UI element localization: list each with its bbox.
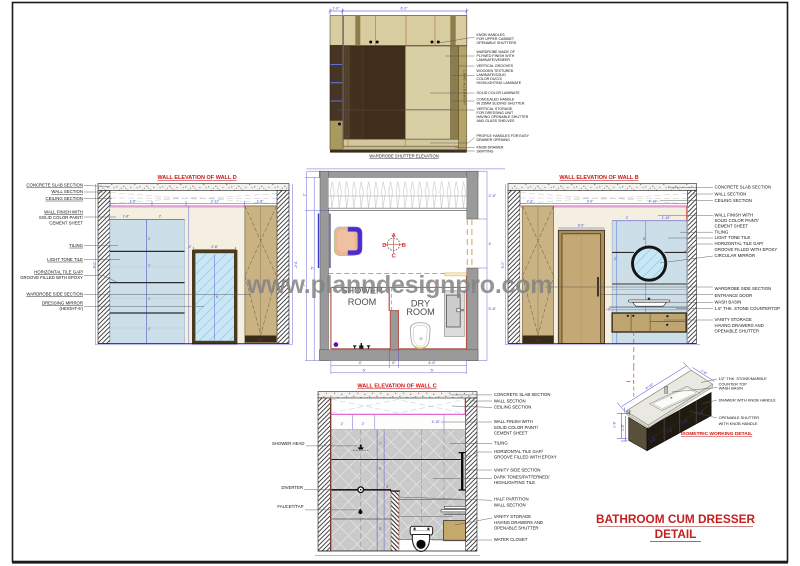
svg-text:5'-6": 5'-6" [489, 307, 497, 311]
svg-text:5': 5' [431, 369, 434, 373]
svg-text:SOLID COLOR LAMINATE: SOLID COLOR LAMINATE [477, 91, 521, 95]
svg-text:4'-6": 4'-6" [428, 361, 436, 365]
svg-text:CEILING SECTION: CEILING SECTION [46, 196, 84, 201]
svg-text:www.planndesignpro.com: www.planndesignpro.com [246, 271, 553, 299]
svg-text:2'-2": 2'-2" [527, 200, 535, 204]
svg-text:FAUCET/TAP: FAUCET/TAP [277, 504, 303, 509]
svg-text:2': 2' [148, 237, 151, 241]
svg-text:SKIRTING: SKIRTING [477, 150, 494, 154]
svg-text:SOLID COLOR PAINT/: SOLID COLOR PAINT/ [39, 215, 84, 220]
svg-text:3': 3' [379, 527, 382, 531]
svg-text:DETAIL: DETAIL [655, 527, 697, 541]
svg-text:OPENABLE SHUTTER: OPENABLE SHUTTER [715, 328, 760, 333]
svg-text:WALL FINISH WITH: WALL FINISH WITH [44, 210, 83, 215]
svg-text:WALL FINISH WITH: WALL FINISH WITH [494, 419, 533, 424]
svg-text:SOLID COLOR PAINT/: SOLID COLOR PAINT/ [494, 425, 539, 430]
svg-text:WASH BASIN: WASH BASIN [719, 385, 743, 390]
svg-text:DRAWER WITH KNOB HANDLE: DRAWER WITH KNOB HANDLE [719, 397, 777, 402]
svg-text:2': 2' [537, 339, 540, 343]
svg-text:WALL ELEVATION OF WALL D: WALL ELEVATION OF WALL D [157, 175, 236, 181]
svg-text:4'-10": 4'-10" [649, 200, 658, 204]
svg-text:WARDROBE SIDE SECTION: WARDROBE SIDE SECTION [715, 286, 772, 291]
svg-text:ENTRANCE DOOR: ENTRANCE DOOR [715, 293, 753, 298]
svg-text:1'-8": 1'-8" [257, 200, 265, 204]
svg-text:VANITY STORAGE: VANITY STORAGE [715, 317, 752, 322]
svg-text:WALL ELEVATION OF WALL B: WALL ELEVATION OF WALL B [559, 175, 638, 181]
svg-text:9'-0": 9'-0" [93, 261, 97, 269]
svg-text:TILING: TILING [69, 243, 84, 248]
svg-text:WALL SECTION: WALL SECTION [494, 502, 526, 507]
svg-text:ROOM: ROOM [406, 307, 435, 317]
svg-text:2': 2' [614, 257, 617, 261]
svg-text:WALL SECTION: WALL SECTION [51, 189, 83, 194]
svg-text:5': 5' [643, 237, 646, 241]
svg-text:CEMENT SHEET: CEMENT SHEET [494, 431, 528, 436]
svg-text:7': 7' [379, 442, 382, 446]
svg-text:WALL SECTION: WALL SECTION [715, 191, 747, 196]
svg-text:1'-10": 1'-10" [662, 216, 671, 220]
svg-text:D: D [382, 243, 386, 249]
svg-text:1'-6": 1'-6" [123, 215, 131, 219]
svg-text:5': 5' [379, 467, 382, 471]
svg-text:3': 3' [386, 485, 389, 489]
svg-text:CEMENT SHEET: CEMENT SHEET [49, 221, 83, 226]
svg-text:DRESSING MIRROR: DRESSING MIRROR [42, 301, 83, 306]
svg-text:1'-5": 1'-5" [130, 200, 138, 204]
svg-text:SHOWER HEAD: SHOWER HEAD [272, 441, 304, 446]
svg-text:DIVERTER: DIVERTER [281, 485, 303, 490]
svg-text:2'-6": 2'-6" [489, 194, 497, 198]
svg-text:1/2" THK. STONE/MARBLE: 1/2" THK. STONE/MARBLE [719, 376, 768, 381]
svg-text:WALL SECTION: WALL SECTION [494, 398, 526, 403]
svg-text:4': 4' [359, 361, 362, 365]
svg-text:1'-0": 1'-0" [333, 7, 341, 11]
svg-text:GROOVE FILLED WITH EPOXY: GROOVE FILLED WITH EPOXY [715, 247, 778, 252]
svg-text:HORIZONTAL TILE GAP/: HORIZONTAL TILE GAP/ [494, 449, 544, 454]
svg-text:WALL FINISH WITH: WALL FINISH WITH [715, 212, 754, 217]
svg-text:1.5" THK. STONE COUNTERTOP: 1.5" THK. STONE COUNTERTOP [715, 306, 781, 311]
svg-text:SOLID COLOR PAINT/: SOLID COLOR PAINT/ [715, 218, 760, 223]
svg-text:6'-2": 6'-2" [401, 7, 409, 11]
svg-text:2': 2' [148, 264, 151, 268]
svg-text:VANITY SIDE SECTION: VANITY SIDE SECTION [494, 467, 541, 472]
svg-text:OPENABLE SHUTTER: OPENABLE SHUTTER [719, 415, 760, 420]
svg-text:2'-11": 2'-11" [211, 200, 220, 204]
svg-text:(HEIGHT-6'): (HEIGHT-6') [60, 306, 84, 311]
svg-text:9'-0": 9'-0" [294, 262, 298, 270]
svg-text:TILING: TILING [715, 229, 730, 234]
svg-text:DARK TONES/PATTERNED/: DARK TONES/PATTERNED/ [494, 475, 550, 480]
svg-text:1½": 1½" [627, 410, 632, 414]
svg-text:4'-10": 4'-10" [432, 420, 441, 424]
svg-text:3'-0": 3'-0" [578, 224, 586, 228]
svg-text:WITH KNOB HANDLE: WITH KNOB HANDLE [719, 421, 758, 426]
svg-text:1'-9": 1'-9" [613, 420, 617, 428]
svg-text:WASH BASIN: WASH BASIN [715, 300, 742, 305]
svg-text:CEILING SECTION: CEILING SECTION [494, 405, 532, 410]
svg-text:CONCRETE SLAB SECTION: CONCRETE SLAB SECTION [494, 392, 551, 397]
svg-text:3'-0": 3'-0" [587, 200, 595, 204]
svg-text:2': 2' [341, 422, 344, 426]
svg-text:1'-3": 1'-3" [621, 423, 625, 431]
svg-text:WALL ELEVATION OF WALL C: WALL ELEVATION OF WALL C [357, 384, 436, 390]
svg-text:CEILING SECTION: CEILING SECTION [715, 198, 753, 203]
svg-text:CIRCULAR MIRROR: CIRCULAR MIRROR [715, 253, 756, 258]
svg-text:9'-0": 9'-0" [501, 261, 505, 269]
svg-text:2': 2' [148, 327, 151, 331]
svg-text:GROOVE FILLED WITH EPOXY: GROOVE FILLED WITH EPOXY [494, 455, 557, 460]
svg-text:BATHROOM CUM DRESSER: BATHROOM CUM DRESSER [596, 512, 756, 526]
svg-text:VERTICAL GROOVES: VERTICAL GROOVES [477, 64, 514, 68]
svg-text:WATER CLOSET: WATER CLOSET [494, 537, 528, 542]
svg-text:WARDROBE SIDE SECTION: WARDROBE SIDE SECTION [26, 292, 83, 297]
svg-text:LIGHT TONE TILE: LIGHT TONE TILE [715, 235, 751, 240]
svg-text:GROOVE FILLED WITH EPOXY: GROOVE FILLED WITH EPOXY [20, 275, 83, 280]
svg-text:B: B [402, 243, 406, 249]
svg-text:WARDROBE MADE OFPLYWED FINISH: WARDROBE MADE OFPLYWED FINISH WITHLAMINA… [477, 50, 516, 62]
svg-text:2': 2' [303, 193, 307, 196]
svg-text:HIGHLIGHTING TILE: HIGHLIGHTING TILE [494, 480, 535, 485]
svg-text:CEMENT SHEET: CEMENT SHEET [715, 224, 749, 229]
svg-text:5': 5' [311, 266, 315, 269]
svg-text:4': 4' [489, 242, 492, 246]
svg-text:HAVING DRAWERS AND: HAVING DRAWERS AND [715, 323, 764, 328]
svg-text:HALF PARTITION: HALF PARTITION [494, 497, 529, 502]
svg-text:6': 6' [216, 295, 219, 299]
svg-text:2': 2' [148, 297, 151, 301]
svg-text:2': 2' [259, 339, 262, 343]
svg-text:HORIZONTAL TILE GAP/: HORIZONTAL TILE GAP/ [715, 241, 765, 246]
svg-text:WARDROBE SHUTTER ELEVATION: WARDROBE SHUTTER ELEVATION [369, 154, 439, 159]
svg-text:VANITY STORAGE: VANITY STORAGE [494, 514, 531, 519]
svg-text:CONCRETE SLAB SECTION: CONCRETE SLAB SECTION [715, 185, 772, 190]
svg-text:2'-6": 2'-6" [211, 245, 219, 249]
svg-text:HAVING DRAWERS AND: HAVING DRAWERS AND [494, 520, 543, 525]
svg-text:ISOMETRIC WORKING DETAIL: ISOMETRIC WORKING DETAIL [681, 431, 752, 437]
svg-text:LIGHT TONE TILE: LIGHT TONE TILE [47, 257, 83, 262]
svg-text:OPENABLE SHUTTER: OPENABLE SHUTTER [494, 526, 539, 531]
svg-text:2': 2' [626, 216, 629, 220]
svg-text:2': 2' [362, 422, 365, 426]
svg-text:CONCRETE SLAB SECTION: CONCRETE SLAB SECTION [26, 183, 83, 188]
svg-text:2': 2' [159, 215, 162, 219]
svg-text:5': 5' [363, 369, 366, 373]
svg-text:HORIZONTAL TILE GAP/: HORIZONTAL TILE GAP/ [34, 270, 84, 275]
svg-text:TILING: TILING [494, 441, 509, 446]
svg-text:+6": +6" [606, 308, 611, 312]
